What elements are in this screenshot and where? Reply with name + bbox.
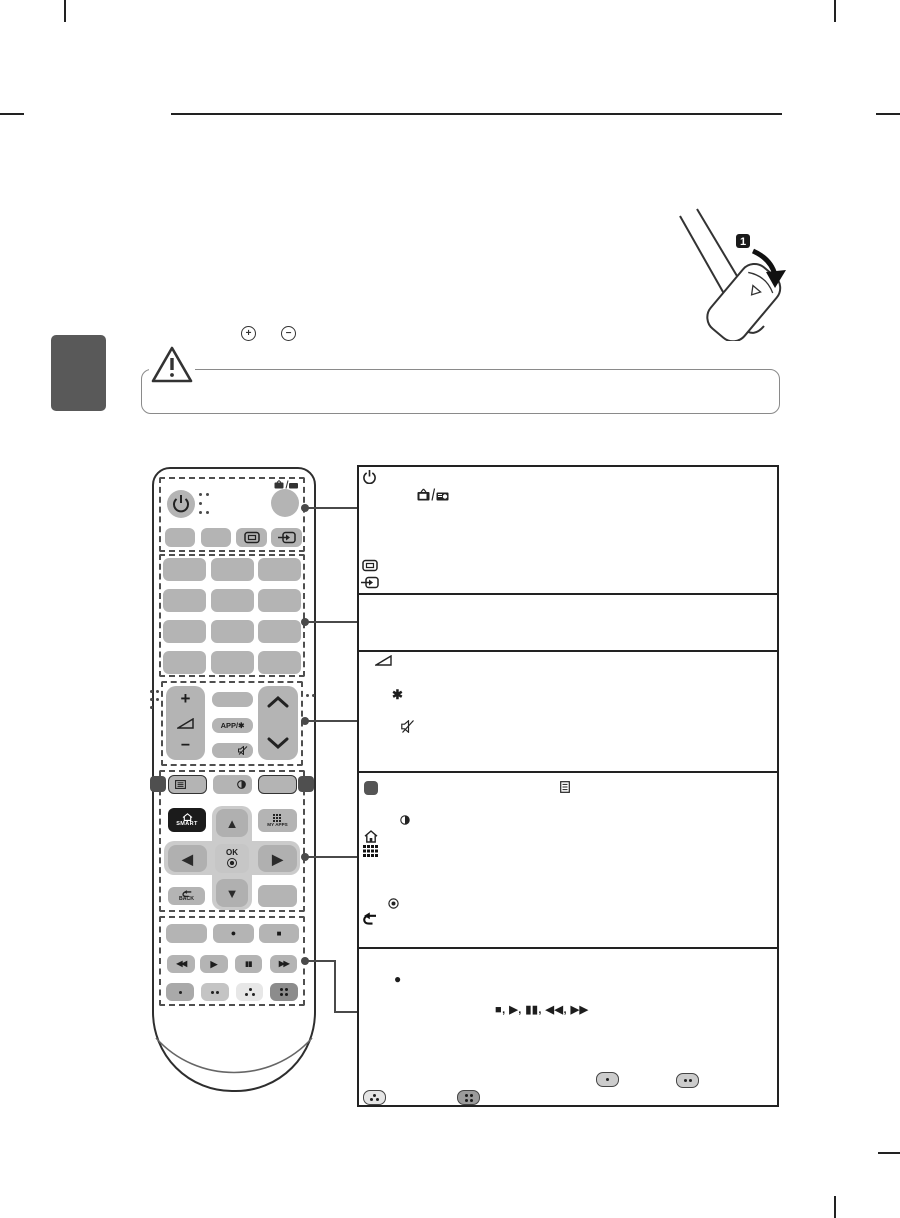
- callout-line: [305, 507, 357, 509]
- dot-mark: [199, 511, 202, 514]
- apps-grid-icon: [363, 845, 378, 859]
- mute-icon: [238, 746, 248, 755]
- up-button: ▲: [216, 809, 248, 837]
- back-button: BACK: [168, 887, 205, 905]
- settings-button: [168, 775, 207, 794]
- table-rule: [359, 593, 777, 595]
- three-dot-pill-icon: [363, 1090, 386, 1105]
- red-button: [166, 983, 194, 1001]
- battery-cover-illustration: 1: [640, 206, 815, 341]
- battery-plus-icon: +: [241, 326, 256, 341]
- ratio-icon: [244, 531, 260, 544]
- volume-minus-label: −: [166, 738, 205, 754]
- rewind-button: ◀◀: [167, 955, 195, 973]
- caution-icon-holder: [149, 344, 195, 386]
- stop-glyph: ■: [277, 930, 282, 938]
- yellow-button: [236, 983, 263, 1001]
- channel-down-icon: [266, 737, 290, 750]
- record-button: ●: [213, 924, 254, 943]
- one-dot-icon: [179, 991, 182, 994]
- table-rule: [359, 650, 777, 652]
- minus-symbol: −: [286, 328, 292, 339]
- play-glyph: ▶: [211, 960, 218, 969]
- ok-button: OK: [215, 844, 249, 873]
- caution-box: [141, 369, 780, 414]
- play-button: ▶: [200, 955, 228, 973]
- callout-line: [334, 960, 336, 1013]
- dot-mark: [150, 690, 153, 693]
- dot: [684, 1079, 687, 1082]
- button-swatch-icon: [364, 781, 378, 795]
- apps-grid-icon: [273, 814, 283, 822]
- callout-line: [305, 960, 336, 962]
- crop-mark: [834, 1196, 836, 1218]
- callout-line: [334, 1011, 357, 1013]
- dot: [211, 991, 214, 994]
- table-rule: [359, 771, 777, 773]
- dot: [606, 1078, 609, 1081]
- dot: [285, 988, 288, 991]
- dot: [252, 993, 255, 996]
- digit-button: [258, 558, 301, 581]
- ok-button-label: OK: [226, 849, 238, 857]
- power-button: [167, 490, 195, 518]
- side-nub-right: [298, 776, 314, 792]
- table-rule: [359, 947, 777, 949]
- back-button-label: BACK: [179, 897, 194, 902]
- callout-line: [305, 856, 357, 858]
- down-button: ▼: [216, 879, 248, 907]
- digit-button: [258, 589, 301, 612]
- ratio-icon: [362, 559, 378, 572]
- volume-icon: [177, 718, 194, 729]
- digit-button: [258, 651, 301, 674]
- four-dot-pill-icon: [457, 1090, 480, 1105]
- section-title-rule: [171, 113, 782, 115]
- dot-mark: [306, 694, 309, 697]
- mute-icon: [401, 720, 415, 733]
- record-glyph: ●: [231, 929, 236, 938]
- one-dot-pill-icon: [596, 1072, 619, 1087]
- input-icon: [278, 531, 296, 544]
- plus-symbol: +: [246, 328, 252, 339]
- volume-icon: [375, 655, 392, 666]
- tv-rad-icon: [417, 488, 449, 501]
- dot: [689, 1079, 692, 1082]
- digit-button: [163, 589, 206, 612]
- home-icon: [364, 830, 378, 843]
- input-button: [271, 528, 302, 547]
- back-icon: [362, 912, 378, 926]
- up-arrow-glyph: ▲: [226, 817, 239, 830]
- dot-mark: [312, 694, 315, 697]
- pause-glyph: ▮▮: [245, 961, 252, 968]
- dot-mark: [206, 511, 209, 514]
- forward-glyph: ▶▶: [279, 960, 288, 968]
- callout-line: [305, 720, 357, 722]
- digit-button: [163, 558, 206, 581]
- info-button: [258, 775, 297, 794]
- dot: [470, 1094, 473, 1097]
- dot: [376, 1098, 379, 1101]
- dot: [249, 988, 252, 991]
- dot: [465, 1094, 468, 1097]
- volume-rocker: + −: [166, 686, 205, 760]
- qmenu-icon: [400, 815, 410, 825]
- right-arrow-glyph: ▶: [272, 852, 283, 866]
- two-dot-pill-icon: [676, 1073, 699, 1088]
- right-button: ▶: [258, 845, 297, 872]
- crop-mark: [878, 1152, 900, 1154]
- dot: [470, 1099, 473, 1102]
- remote-bottom-seam: [152, 1028, 316, 1090]
- power-icon: [362, 469, 377, 484]
- my-apps-button: MY APPS: [258, 809, 297, 832]
- dot-mark: [150, 698, 153, 701]
- record-dot-icon: ●: [394, 973, 401, 985]
- digit-button: [258, 620, 301, 643]
- ratio-button: [236, 528, 267, 547]
- media-sequence: ■, ▶, ▮▮, ◀◀, ▶▶: [495, 1005, 589, 1016]
- dot-mark: [199, 502, 202, 505]
- settings-icon: [175, 780, 186, 789]
- exit-button: [258, 885, 297, 907]
- crop-mark: [834, 0, 836, 22]
- dot-mark: [199, 493, 202, 496]
- channel-rocker: [258, 686, 298, 760]
- chapter-tab: [51, 335, 106, 411]
- subtitle-button: [166, 924, 207, 943]
- av-mode-button: [201, 528, 231, 547]
- stop-button: ■: [259, 924, 299, 943]
- crop-mark: [876, 113, 900, 115]
- digit-button: [163, 620, 206, 643]
- dot: [285, 993, 288, 996]
- qmenu-button: [213, 775, 252, 794]
- asterisk-icon: ✱: [392, 688, 403, 701]
- callout-line: [305, 621, 357, 623]
- dot: [280, 988, 283, 991]
- ok-icon: [388, 898, 399, 909]
- dot: [370, 1098, 373, 1101]
- list-icon: [560, 781, 570, 793]
- my-apps-button-label: MY APPS: [267, 823, 287, 828]
- rewind-glyph: ◀◀: [176, 960, 185, 968]
- dot-mark: [206, 493, 209, 496]
- ok-wheel-icon: [227, 858, 237, 868]
- dot-mark: [156, 698, 159, 701]
- digit-button: [211, 558, 254, 581]
- tv-rad-mini-icon: [274, 480, 298, 489]
- down-arrow-glyph: ▼: [226, 887, 239, 900]
- crop-mark: [64, 0, 66, 22]
- dot: [373, 1094, 376, 1097]
- dot: [465, 1099, 468, 1102]
- battery-minus-icon: −: [281, 326, 296, 341]
- digit-button: [211, 651, 254, 674]
- input-icon: [361, 576, 379, 589]
- app-button-label: APP/✱: [221, 722, 245, 730]
- pause-button: ▮▮: [235, 955, 262, 973]
- tv-rad-button: [271, 489, 299, 517]
- blue-button: [270, 983, 298, 1001]
- green-button: [201, 983, 229, 1001]
- side-nub-left: [150, 776, 166, 792]
- digit-button: [163, 651, 206, 674]
- power-icon: [167, 490, 195, 518]
- smart-button: SMART: [168, 808, 206, 832]
- dot-mark: [156, 690, 159, 693]
- energy-saving-button: [165, 528, 195, 547]
- left-arrow-glyph: ◀: [182, 852, 193, 866]
- dot-mark: [150, 706, 153, 709]
- channel-up-icon: [266, 695, 290, 708]
- dot: [280, 993, 283, 996]
- dot: [245, 993, 248, 996]
- manual-page: + − 1: [0, 0, 900, 1218]
- smart-home-icon: [182, 813, 193, 821]
- crop-mark: [0, 113, 24, 115]
- dot: [216, 991, 219, 994]
- digit-button: [211, 620, 254, 643]
- left-button: ◀: [168, 845, 207, 872]
- qmenu-icon: [237, 780, 246, 789]
- mute-button: [212, 743, 253, 758]
- smart-button-label: SMART: [176, 822, 198, 828]
- guide-button: [212, 692, 253, 707]
- volume-plus-label: +: [166, 690, 205, 707]
- step-1-badge-label: 1: [740, 236, 746, 248]
- forward-button: ▶▶: [270, 955, 297, 973]
- digit-button: [211, 589, 254, 612]
- warning-triangle-icon: [149, 344, 195, 386]
- app-button: APP/✱: [212, 718, 253, 733]
